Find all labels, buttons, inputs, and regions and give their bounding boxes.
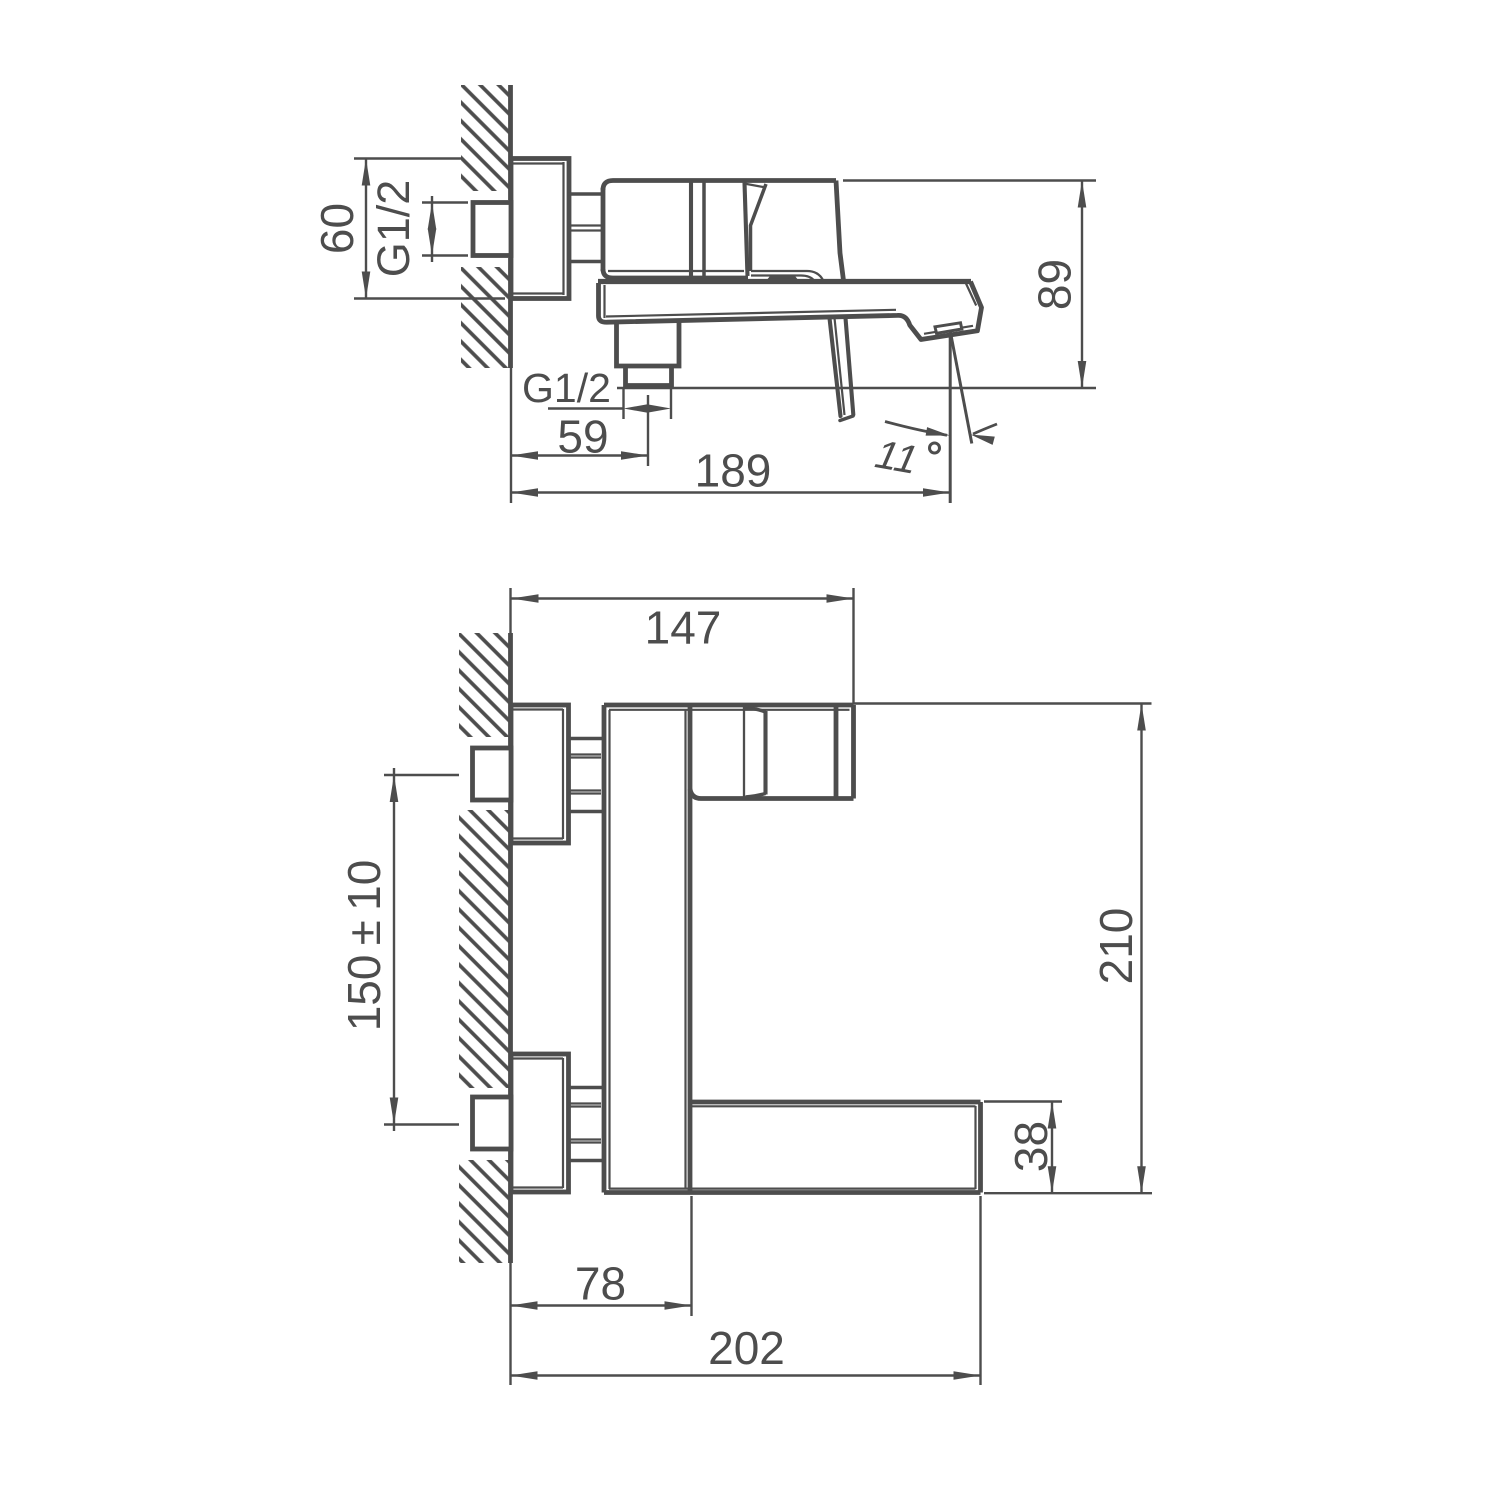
svg-text:78: 78 — [575, 1258, 626, 1310]
svg-text:89: 89 — [1029, 259, 1081, 310]
svg-text:G1/2: G1/2 — [368, 180, 419, 278]
svg-text:G1/2: G1/2 — [522, 365, 611, 411]
svg-text:59: 59 — [557, 411, 608, 463]
svg-text:210: 210 — [1090, 908, 1142, 985]
svg-text:189: 189 — [695, 445, 772, 497]
svg-text:202: 202 — [708, 1322, 785, 1374]
svg-text:38: 38 — [1005, 1121, 1057, 1172]
svg-text:150 ± 10: 150 ± 10 — [338, 860, 390, 1032]
svg-text:147: 147 — [645, 602, 722, 654]
svg-text:60: 60 — [311, 203, 363, 254]
